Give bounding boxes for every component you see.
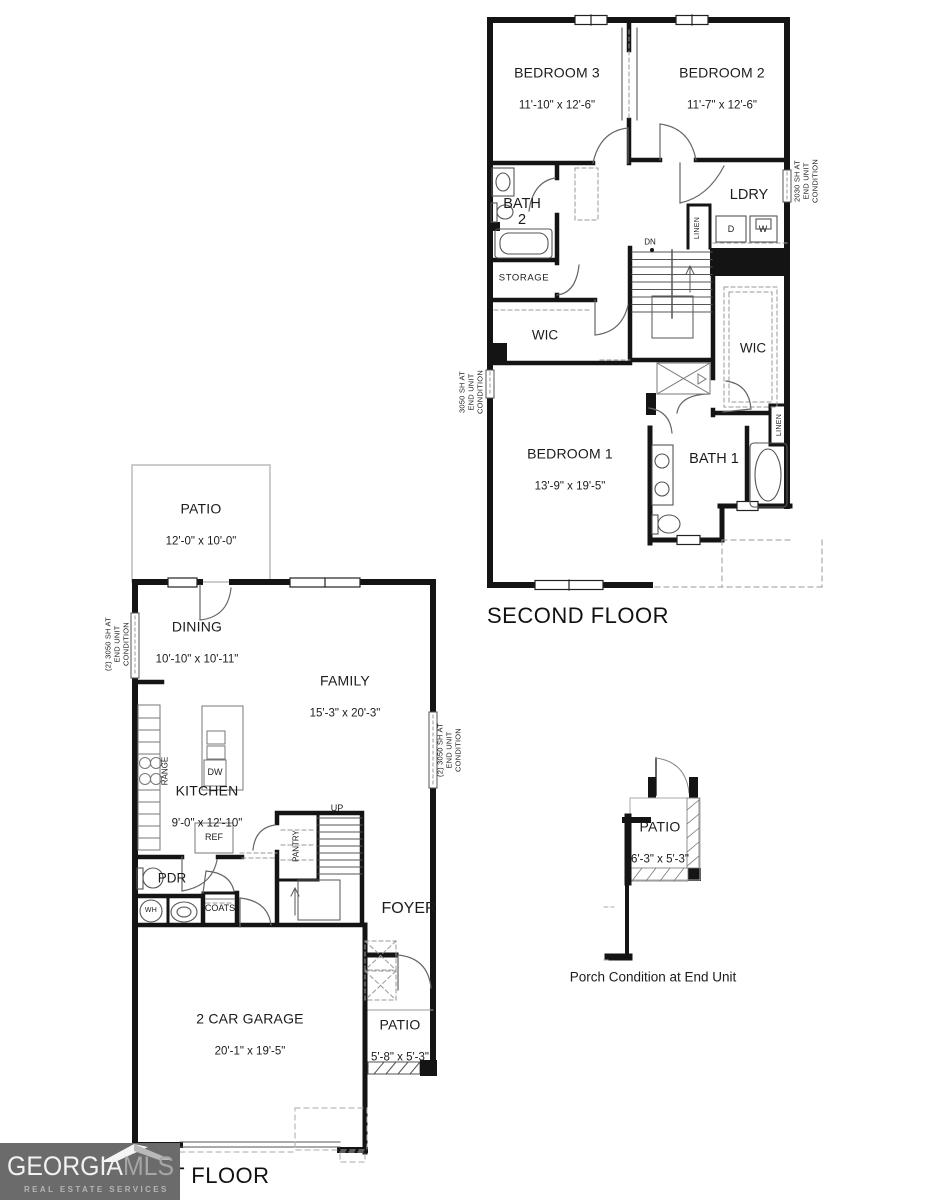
room-label-wic-left: WIC — [532, 327, 558, 342]
room-name: FAMILY — [310, 673, 381, 689]
fixture-label-range: RANGE — [162, 757, 171, 785]
room-label-bath-1: BATH 1 — [689, 451, 739, 467]
room-label-wic-right: WIC — [740, 340, 766, 355]
logo-text-georgia: GEORGIA — [7, 1151, 123, 1181]
window-note-sf-right: 2030 SH AT END UNIT CONDITION — [793, 159, 820, 203]
room-label-family: FAMILY 15'-3" x 20'-3" — [310, 655, 381, 738]
room-name: BEDROOM 3 — [514, 65, 600, 81]
room-label-bedroom-3: BEDROOM 3 11'-10" x 12'-6" — [514, 47, 600, 130]
fixture-label-dishwasher: DW — [208, 767, 223, 777]
room-name: PATIO — [371, 1017, 429, 1033]
stair-label-down: DN — [644, 239, 656, 248]
room-dims: 12'-0" x 10'-0" — [166, 536, 237, 549]
room-label-patio-rear: PATIO 12'-0" x 10'-0" — [166, 483, 237, 566]
room-dims: 13'-9" x 19'-5" — [527, 481, 613, 494]
room-dims: 10'-10" x 10'-11" — [156, 654, 239, 667]
room-label-pantry: PANTRY — [293, 830, 302, 862]
room-dims: 15'-3" x 20'-3" — [310, 708, 381, 721]
room-dims: 11'-10" x 12'-6" — [514, 100, 600, 113]
room-label-porch-patio: PATIO 6'-3" x 5'-3" — [631, 801, 689, 884]
room-name: BEDROOM 1 — [527, 446, 613, 462]
room-label-linen-bath: LINEN — [776, 414, 784, 436]
room-label-laundry: LDRY — [730, 187, 768, 203]
logo-wordmark: GEORGIAMLS — [7, 1151, 174, 1182]
room-dims: 11'-7" x 12'-6" — [679, 100, 765, 113]
stair-label-up: UP — [331, 803, 344, 813]
appliance-label-washer: W — [759, 224, 768, 234]
room-label-bedroom-1: BEDROOM 1 13'-9" x 19'-5" — [527, 428, 613, 511]
room-label-dining: DINING 10'-10" x 10'-11" — [156, 601, 239, 684]
room-label-storage: STORAGE — [499, 274, 549, 285]
room-name: DINING — [156, 619, 239, 635]
window-note-ff-left: (2) 3050 SH AT END UNIT CONDITION — [104, 617, 131, 671]
room-label-foyer: FOYER — [381, 900, 436, 918]
second-floor-title: SECOND FLOOR — [487, 603, 669, 629]
room-dims: 6'-3" x 5'-3" — [631, 854, 689, 867]
room-name: PATIO — [166, 501, 237, 517]
appliance-label-dryer: D — [728, 224, 735, 234]
room-label-linen-hall: LINEN — [694, 217, 702, 239]
fixture-label-water-heater: WH — [145, 907, 157, 915]
room-label-bedroom-2: BEDROOM 2 11'-7" x 12'-6" — [679, 47, 765, 130]
room-name: BEDROOM 2 — [679, 65, 765, 81]
room-label-bath-2: BATH 2 — [503, 196, 541, 228]
room-name: KITCHEN — [172, 783, 243, 799]
floorplan-sheet: BEDROOM 3 11'-10" x 12'-6" BEDROOM 2 11'… — [0, 0, 939, 1200]
window-note-ff-right: (2) 3050 SH AT END UNIT CONDITION — [436, 723, 463, 777]
room-label-garage: 2 CAR GARAGE 20'-1" x 19'-5" — [196, 993, 303, 1076]
logo-text-mls: MLS — [123, 1151, 174, 1181]
room-name: 2 CAR GARAGE — [196, 1011, 303, 1027]
porch-detail-caption: Porch Condition at End Unit — [570, 969, 737, 984]
room-dims: 20'-1" x 19'-5" — [196, 1046, 303, 1059]
georgiamls-logo: GEORGIAMLS REAL ESTATE SERVICES — [0, 1143, 180, 1200]
fixture-label-refrigerator: REF — [205, 832, 223, 842]
room-label-coats: COATS — [205, 903, 235, 913]
room-label-powder: PDR — [158, 870, 187, 885]
room-dims: 5'-8" x 5'-3" — [371, 1052, 429, 1065]
room-name: PATIO — [631, 819, 689, 835]
window-note-sf-left: 3050 SH AT END UNIT CONDITION — [458, 370, 485, 414]
logo-tagline: REAL ESTATE SERVICES — [24, 1185, 169, 1194]
room-dims: 9'-0" x 12'-10" — [172, 818, 243, 831]
room-label-patio-front: PATIO 5'-8" x 5'-3" — [371, 999, 429, 1082]
